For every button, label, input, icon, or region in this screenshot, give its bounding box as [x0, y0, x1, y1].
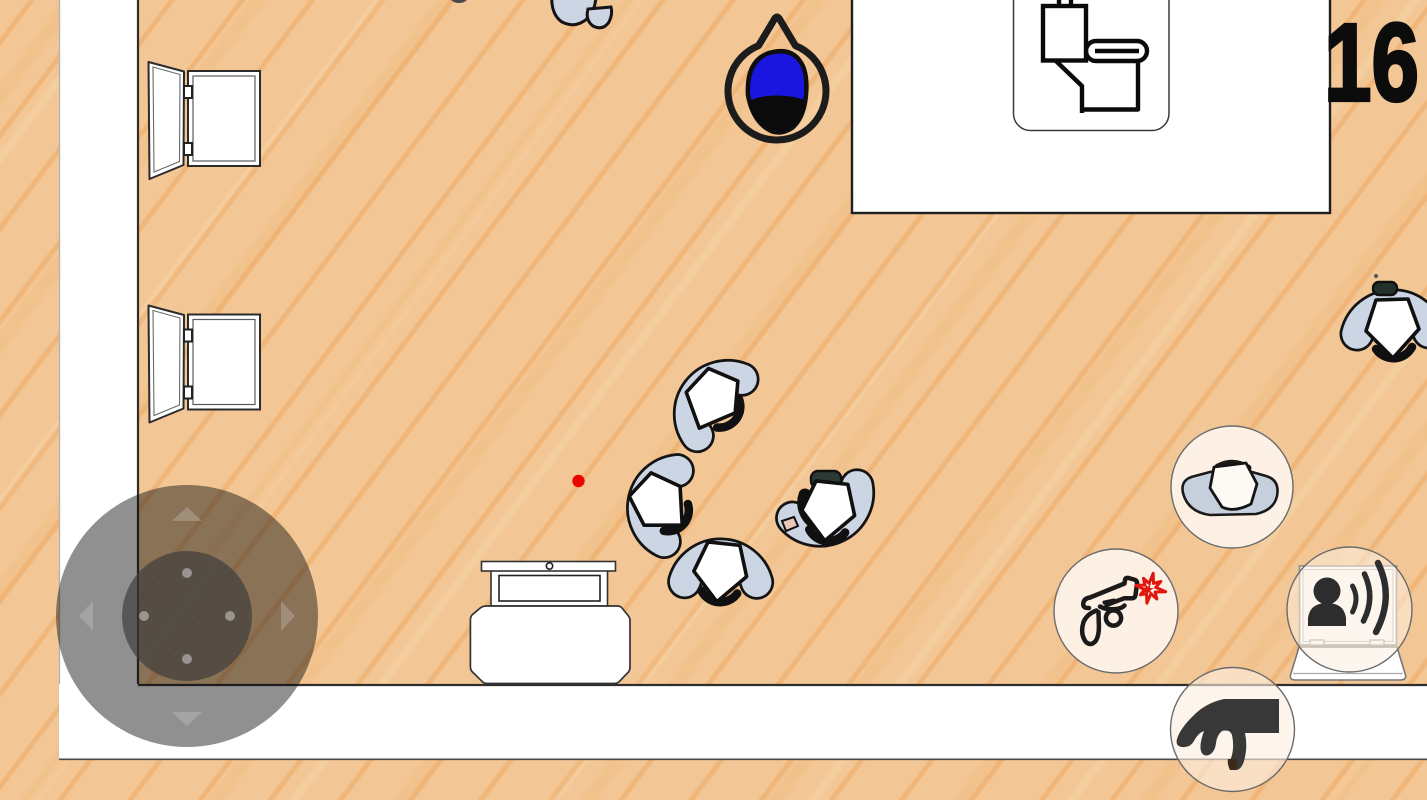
svg-text:16: 16	[1324, 2, 1419, 125]
